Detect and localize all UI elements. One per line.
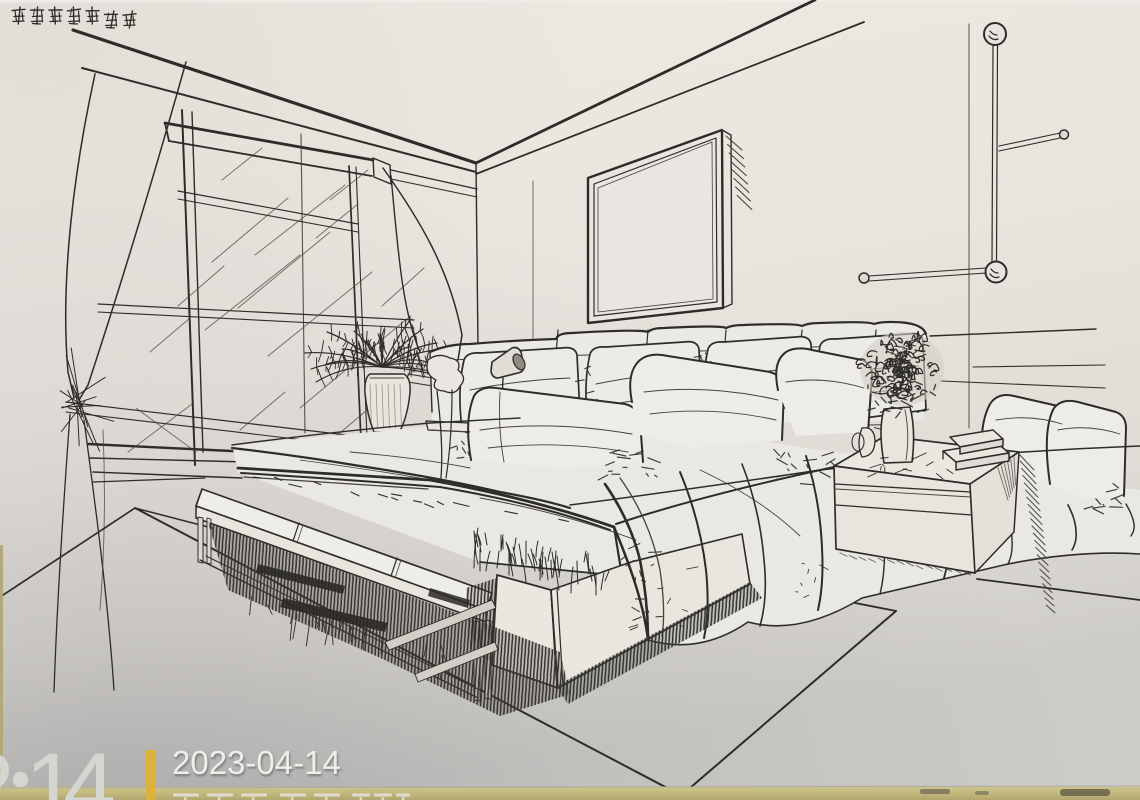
svg-text:2: 2 [0,734,15,800]
svg-text:2023-04-14: 2023-04-14 [172,744,341,781]
svg-text:4: 4 [63,734,116,800]
